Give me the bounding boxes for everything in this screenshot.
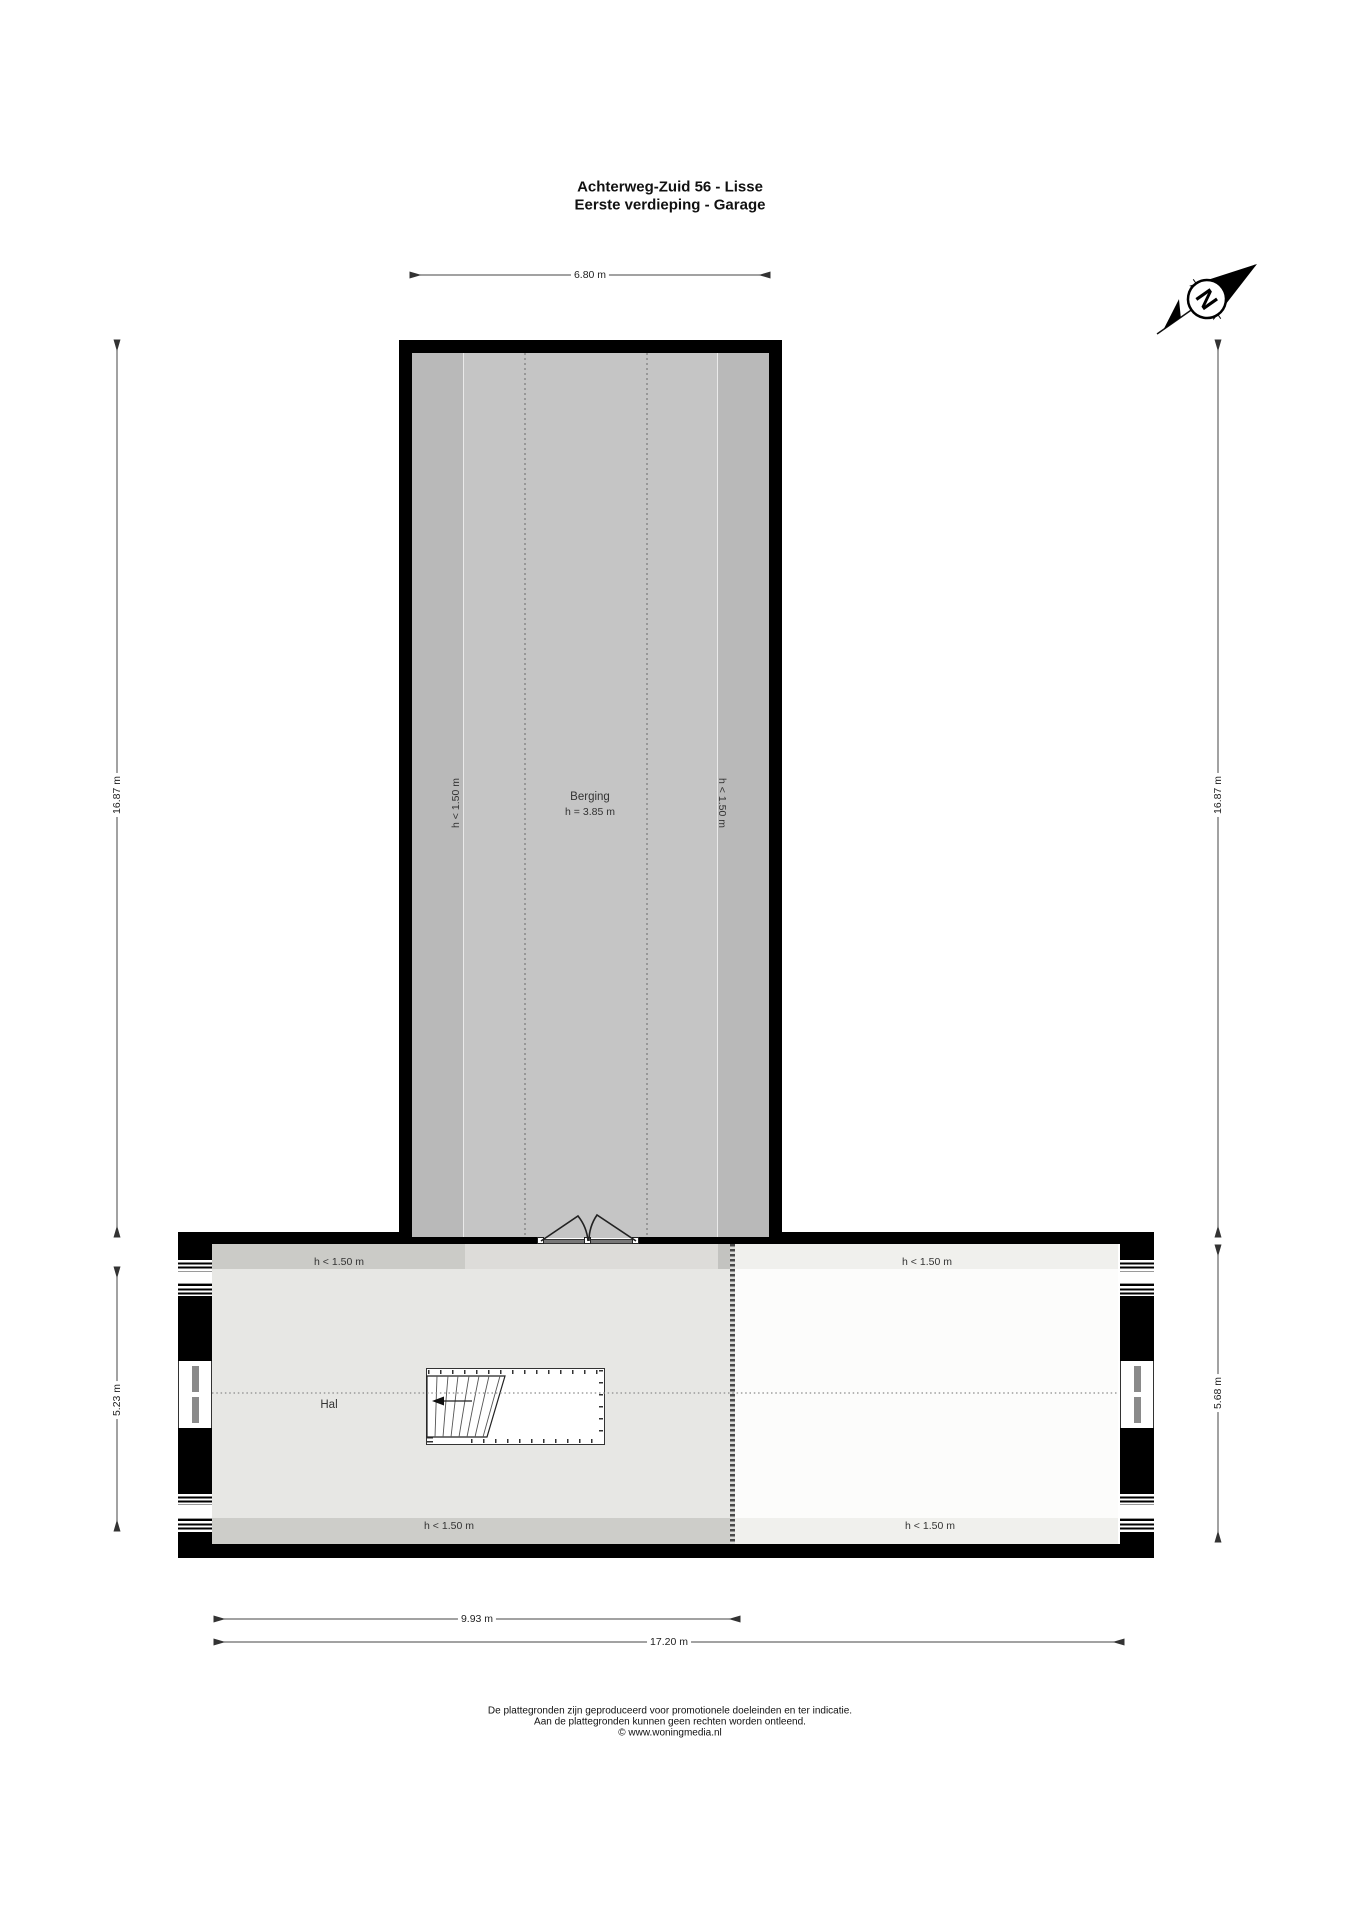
wall-gap (1120, 1504, 1154, 1519)
attic-floor (733, 1244, 1118, 1544)
window-hatch (178, 1492, 212, 1504)
wall-gap (1120, 1271, 1154, 1284)
lower-wall-top-right (769, 1232, 1154, 1244)
footer-disclaimer-1: De plattegronden zijn geproduceerd voor … (488, 1706, 852, 1717)
window-hatch (1120, 1258, 1154, 1271)
floor-plan-page: Achterweg-Zuid 56 - Lisse Eerste verdiep… (0, 0, 1358, 1920)
page-title-address: Achterweg-Zuid 56 - Lisse (577, 179, 763, 196)
window-frame-bar (192, 1361, 199, 1428)
attic-low-label-top: h < 1.50 m (902, 1256, 952, 1268)
berging-hal-wall-left (412, 1237, 540, 1244)
berging-wall-left (399, 340, 412, 1238)
lower-wall-top-left (178, 1232, 412, 1244)
berging-wall-top (399, 340, 782, 353)
attic-low-label-bottom: h < 1.50 m (905, 1520, 955, 1532)
berging-wall-right (769, 340, 782, 1238)
page-title-floor: Eerste verdieping - Garage (575, 197, 766, 214)
window-hatch (1120, 1492, 1154, 1504)
dim-total-width: 17.20 m (647, 1636, 691, 1648)
stair-teeth-top (428, 1370, 601, 1374)
hal-low-label-top: h < 1.50 m (314, 1256, 364, 1268)
dim-hal-width: 9.93 m (458, 1613, 496, 1625)
wall-segment (178, 1428, 212, 1492)
wall-segment (1120, 1428, 1154, 1492)
door-hinge-left (537, 1237, 544, 1244)
footer-copyright: © www.woningmedia.nl (618, 1728, 722, 1739)
stairwell-opening (426, 1368, 605, 1445)
hal-room-label: Hal (320, 1399, 337, 1411)
wall-segment (1120, 1232, 1154, 1258)
window-hatch (178, 1258, 212, 1271)
wall-gap (178, 1504, 212, 1519)
wall-segment (1120, 1532, 1154, 1558)
window-wall-left (178, 1232, 212, 1558)
wall-segment (178, 1532, 212, 1558)
window-hatch (178, 1519, 212, 1532)
stair-hatch-corner (427, 1429, 433, 1444)
stair-teeth-right (599, 1370, 603, 1441)
window (1120, 1361, 1154, 1428)
dim-right-total-height: 16.87 m (1212, 773, 1224, 817)
hal-low-strip-top-mid (465, 1244, 718, 1269)
footer-disclaimer-2: Aan de plattegronden kunnen geen rechten… (534, 1717, 806, 1728)
wall-segment (178, 1232, 212, 1258)
berging-low-label-left: h < 1.50 m (450, 778, 462, 828)
window-hatch (1120, 1519, 1154, 1532)
wall-segment (178, 1296, 212, 1361)
lower-wall-bottom (178, 1544, 1154, 1558)
window-frame-bar (1134, 1361, 1141, 1428)
door-hinge-center (584, 1237, 591, 1244)
berging-low-label-right: h < 1.50 m (716, 778, 728, 828)
dim-berging-width: 6.80 m (571, 269, 609, 281)
window-hatch (178, 1284, 212, 1296)
hal-attic-partition (730, 1244, 735, 1544)
berging-hal-wall-right (636, 1237, 769, 1244)
window-wall-right (1120, 1232, 1154, 1558)
window-hatch (1120, 1284, 1154, 1296)
door-hinge-right (632, 1237, 639, 1244)
dim-attic-height: 5.68 m (1212, 1374, 1224, 1412)
stair-teeth-bottom (471, 1439, 601, 1443)
berging-ceiling-height: h = 3.85 m (565, 806, 615, 818)
hal-low-label-bottom: h < 1.50 m (424, 1520, 474, 1532)
compass-north-label: N (1190, 284, 1223, 315)
wall-segment (1120, 1296, 1154, 1361)
wall-gap (178, 1271, 212, 1284)
window (178, 1361, 212, 1428)
dim-left-total-height: 16.87 m (111, 773, 123, 817)
dim-hal-height: 5.23 m (111, 1381, 123, 1419)
berging-room-label: Berging (570, 791, 610, 803)
compass-north-arrow: N (1143, 244, 1270, 353)
